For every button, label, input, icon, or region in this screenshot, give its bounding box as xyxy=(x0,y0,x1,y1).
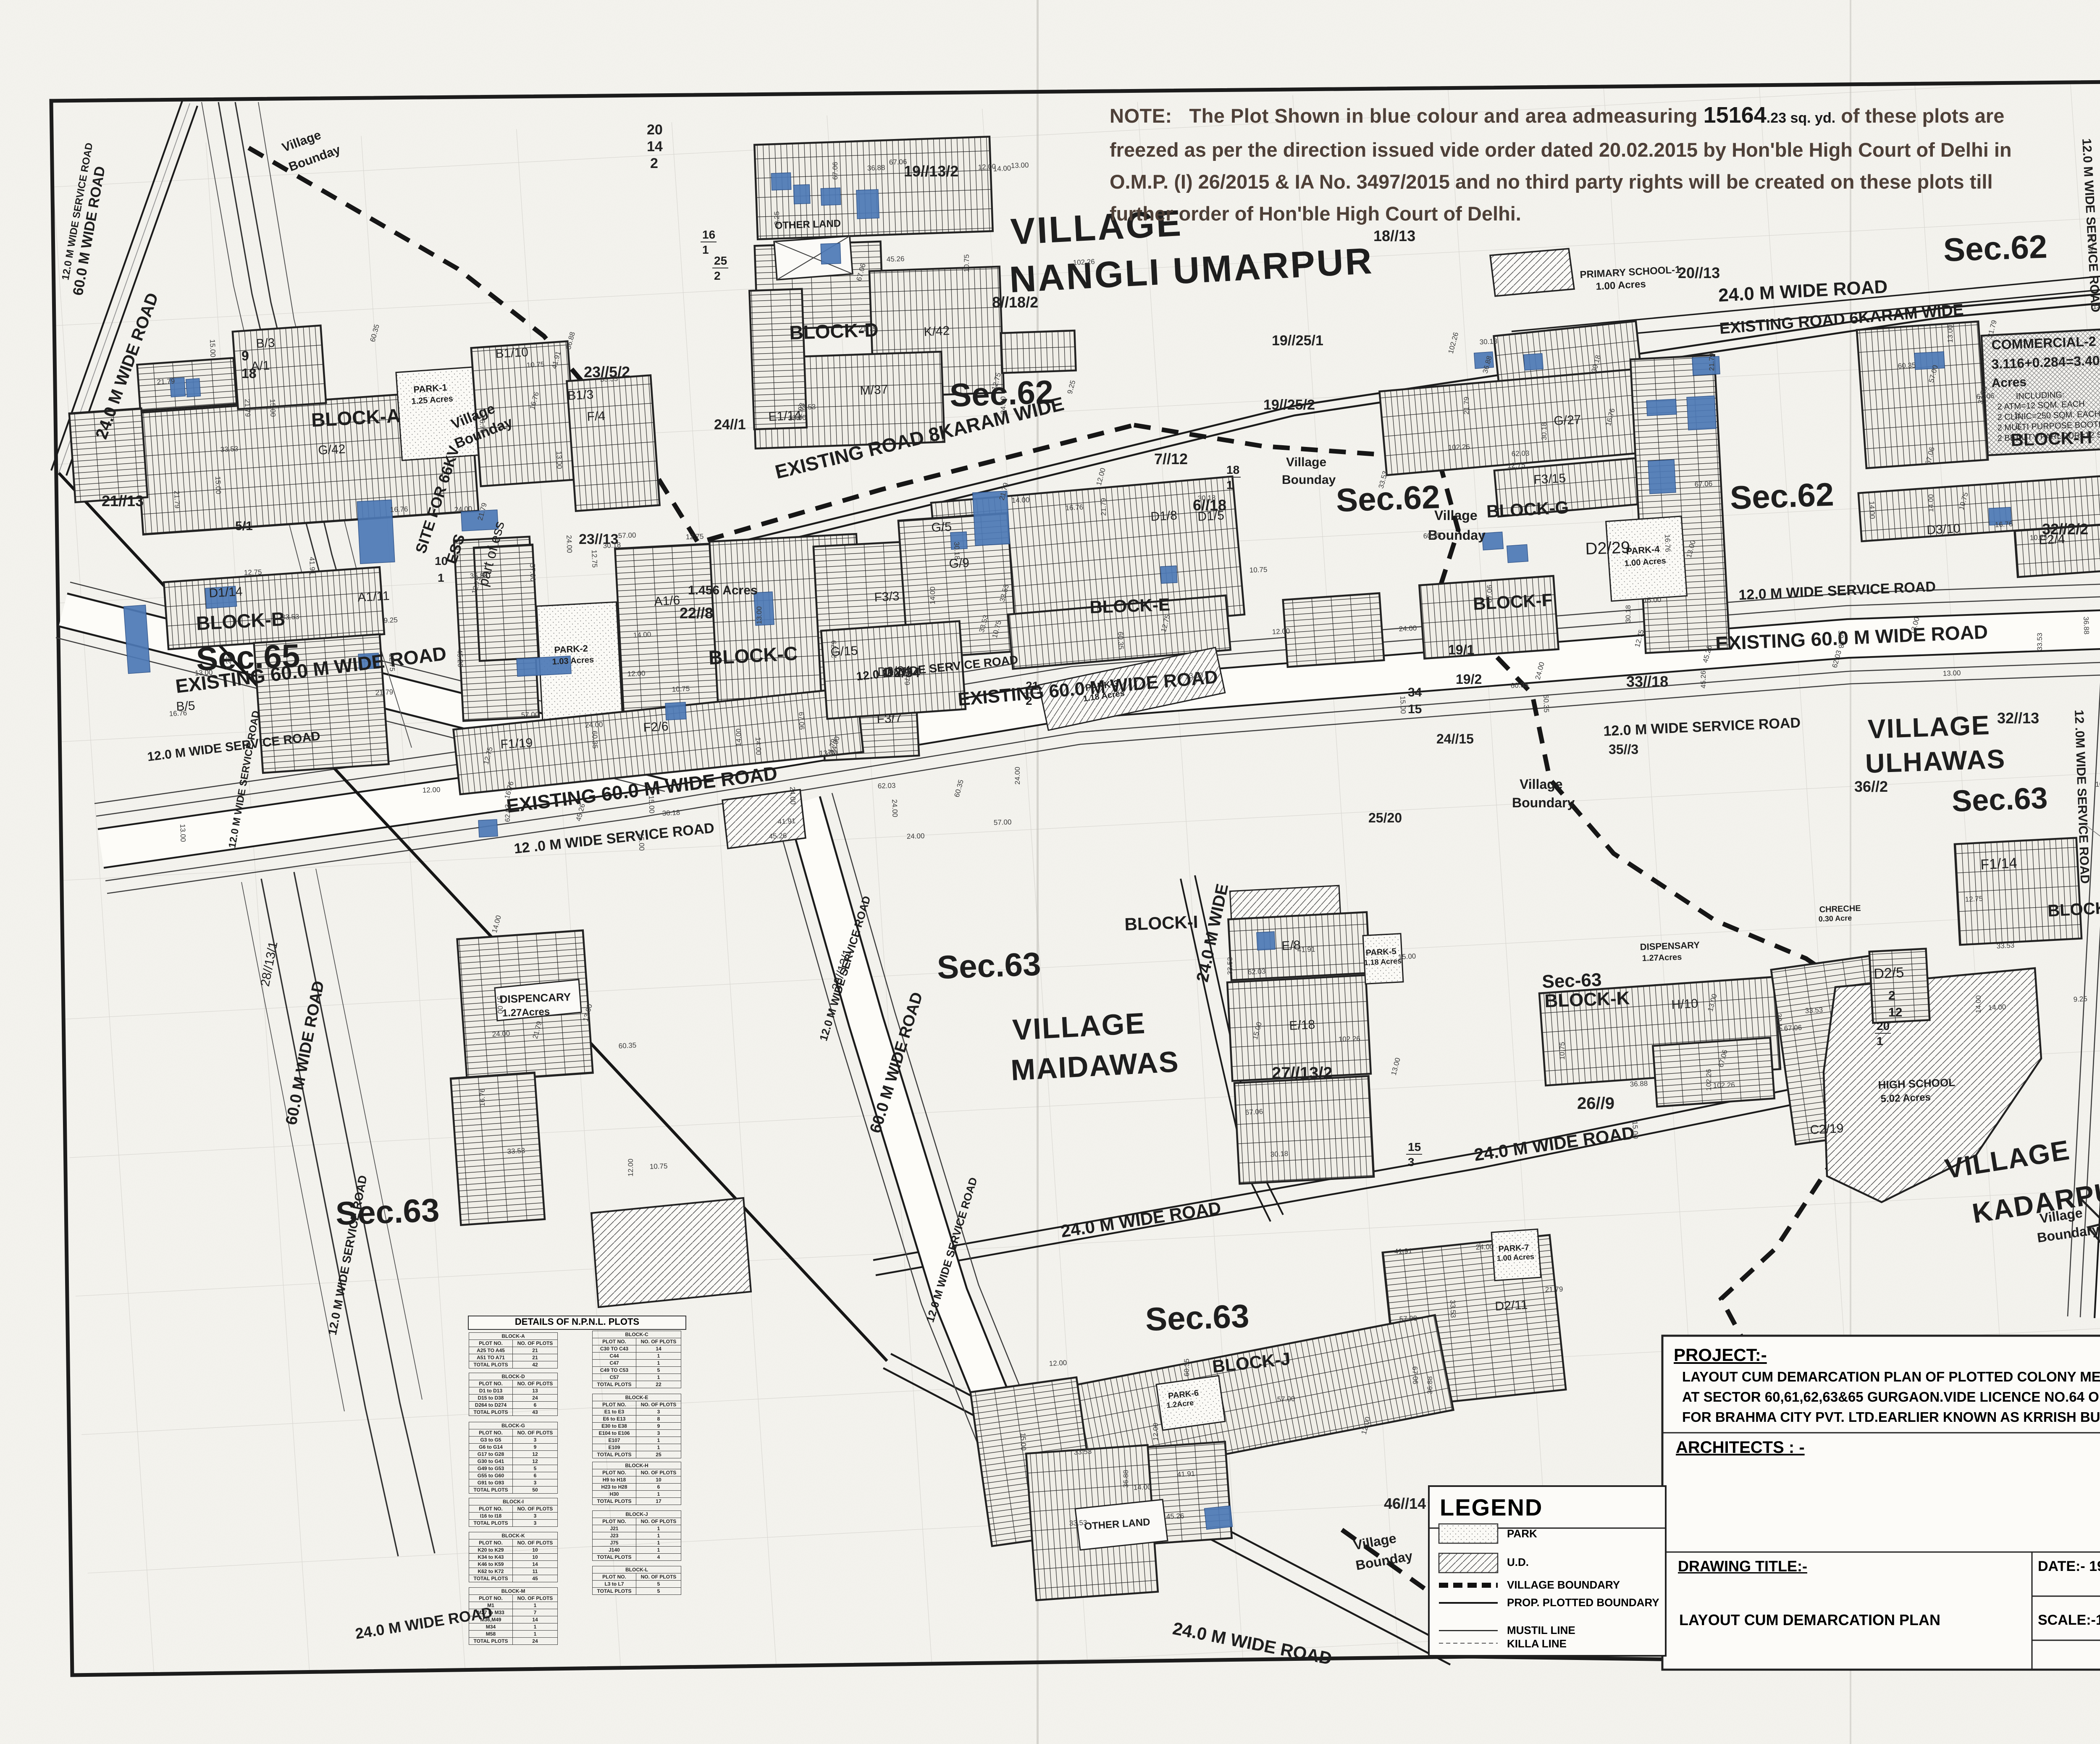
svg-text:24.00: 24.00 xyxy=(492,1030,510,1038)
svg-text:24.00: 24.00 xyxy=(999,396,1007,414)
svg-text:2: 2 xyxy=(714,269,721,282)
svg-text:21.79: 21.79 xyxy=(1462,397,1470,415)
svg-text:14.00: 14.00 xyxy=(735,728,743,746)
svg-text:Village: Village xyxy=(1520,777,1563,792)
svg-text:9.25: 9.25 xyxy=(383,616,398,625)
svg-text:Sec.62: Sec.62 xyxy=(1943,228,2048,268)
svg-text:15.00: 15.00 xyxy=(208,339,217,357)
svg-text:Sec.62: Sec.62 xyxy=(1730,475,1835,516)
svg-text:45.26: 45.26 xyxy=(2087,234,2095,252)
svg-text:14.00: 14.00 xyxy=(1011,496,1029,504)
svg-text:13.00: 13.00 xyxy=(1185,671,1203,680)
svg-text:C2/19: C2/19 xyxy=(1810,1122,1844,1137)
svg-text:15.00: 15.00 xyxy=(1631,1121,1639,1139)
svg-text:VILLAGE: VILLAGE xyxy=(1867,710,1991,744)
svg-text:62.03: 62.03 xyxy=(1511,449,1529,458)
svg-text:57.00: 57.00 xyxy=(993,818,1011,827)
svg-text:33.53: 33.53 xyxy=(1074,1447,1092,1456)
svg-text:12.00: 12.00 xyxy=(1152,1423,1160,1441)
svg-text:D2/29: D2/29 xyxy=(1585,538,1630,558)
svg-text:G/42: G/42 xyxy=(318,442,346,457)
svg-text:12.00: 12.00 xyxy=(627,670,645,678)
svg-text:41.91: 41.91 xyxy=(777,817,795,826)
svg-text:12.00: 12.00 xyxy=(978,163,996,171)
svg-text:21.79: 21.79 xyxy=(903,667,911,685)
svg-text:16.76: 16.76 xyxy=(2095,780,2100,788)
svg-text:60.35: 60.35 xyxy=(1423,531,1441,540)
svg-text:21.79: 21.79 xyxy=(157,377,175,386)
svg-text:33//18: 33//18 xyxy=(1626,673,1668,690)
svg-text:13.00: 13.00 xyxy=(178,824,187,842)
svg-text:15: 15 xyxy=(1408,702,1422,716)
svg-text:INCLUDING:: INCLUDING: xyxy=(2016,390,2064,401)
svg-text:33.53: 33.53 xyxy=(1996,941,2014,950)
svg-text:14.00: 14.00 xyxy=(1133,1483,1151,1492)
svg-text:36.88: 36.88 xyxy=(2082,616,2090,634)
svg-text:PARK-5: PARK-5 xyxy=(1365,947,1396,958)
svg-text:67.06: 67.06 xyxy=(1486,585,1494,603)
svg-text:12.75: 12.75 xyxy=(244,568,262,577)
svg-text:33.53: 33.53 xyxy=(1069,1519,1087,1527)
svg-text:102.26: 102.26 xyxy=(1448,443,1470,452)
svg-text:16.76: 16.76 xyxy=(1995,520,2013,529)
svg-text:12.75: 12.75 xyxy=(1965,895,1983,904)
svg-text:15.00: 15.00 xyxy=(1643,596,1661,604)
svg-text:16.76: 16.76 xyxy=(478,1088,486,1106)
svg-text:D1/14: D1/14 xyxy=(209,585,243,600)
svg-text:19//25/2: 19//25/2 xyxy=(1263,397,1315,413)
svg-text:41.91: 41.91 xyxy=(1177,1470,1195,1479)
svg-text:G/5: G/5 xyxy=(931,520,952,535)
svg-text:30.18: 30.18 xyxy=(662,809,680,817)
svg-text:14.00: 14.00 xyxy=(1974,995,1982,1013)
svg-text:1.27Acres: 1.27Acres xyxy=(1642,953,1682,963)
svg-text:62.03: 62.03 xyxy=(877,782,895,790)
svg-text:12.00: 12.00 xyxy=(1049,1359,1067,1368)
svg-text:57.00: 57.00 xyxy=(1277,1395,1295,1403)
svg-text:30.18: 30.18 xyxy=(1540,422,1548,440)
svg-text:21.79: 21.79 xyxy=(2013,411,2022,429)
svg-text:60.35: 60.35 xyxy=(591,730,599,749)
svg-text:24//1: 24//1 xyxy=(714,417,746,433)
svg-text:14.00: 14.00 xyxy=(1988,1003,2006,1012)
svg-text:F1/19: F1/19 xyxy=(500,736,533,751)
svg-text:24.00: 24.00 xyxy=(585,721,603,729)
svg-text:A1/11: A1/11 xyxy=(357,589,390,604)
svg-text:10.75: 10.75 xyxy=(672,685,690,693)
svg-text:19//25/1: 19//25/1 xyxy=(1272,333,1323,349)
svg-text:41.91: 41.91 xyxy=(1297,946,1315,954)
svg-text:13.00: 13.00 xyxy=(2092,302,2100,310)
svg-text:D3/10: D3/10 xyxy=(1927,522,1961,537)
svg-text:67.06: 67.06 xyxy=(1976,392,1994,401)
svg-text:33.53: 33.53 xyxy=(2036,633,2044,651)
svg-text:14.00: 14.00 xyxy=(1927,494,1935,512)
svg-text:60.35: 60.35 xyxy=(1183,1358,1191,1376)
svg-text:18: 18 xyxy=(1226,463,1239,476)
svg-text:19/2: 19/2 xyxy=(1456,672,1482,687)
svg-text:33.53: 33.53 xyxy=(281,613,299,621)
svg-text:20//13: 20//13 xyxy=(1678,264,1720,281)
svg-text:21.79: 21.79 xyxy=(375,688,393,697)
svg-text:13.00: 13.00 xyxy=(555,451,563,469)
svg-text:9.25: 9.25 xyxy=(2073,995,2087,1003)
svg-text:25/20: 25/20 xyxy=(1368,810,1402,825)
svg-text:VILLAGE: VILLAGE xyxy=(1012,1006,1147,1046)
svg-text:36.88: 36.88 xyxy=(1122,1470,1130,1488)
svg-text:Sec.63: Sec.63 xyxy=(937,945,1042,986)
svg-text:2: 2 xyxy=(1888,989,1895,1003)
svg-text:14.00: 14.00 xyxy=(1868,501,1876,519)
svg-text:A1/6: A1/6 xyxy=(654,594,680,609)
svg-text:67.06: 67.06 xyxy=(1694,480,1712,489)
svg-text:10.75: 10.75 xyxy=(2029,533,2047,542)
svg-text:21.79: 21.79 xyxy=(243,399,252,417)
svg-text:F2/6: F2/6 xyxy=(643,720,669,735)
svg-text:3: 3 xyxy=(1408,1156,1415,1169)
svg-text:0.30 Acre: 0.30 Acre xyxy=(1818,914,1852,923)
svg-text:13.00: 13.00 xyxy=(1942,669,1961,678)
svg-text:8//18/2: 8//18/2 xyxy=(992,294,1038,311)
svg-text:45.26: 45.26 xyxy=(886,255,904,263)
svg-text:19//13/2: 19//13/2 xyxy=(904,163,958,180)
svg-text:67.06: 67.06 xyxy=(1245,1108,1263,1116)
svg-text:2: 2 xyxy=(650,155,658,171)
svg-text:F3/15: F3/15 xyxy=(1533,471,1566,487)
svg-text:B1/10: B1/10 xyxy=(495,345,529,361)
svg-text:12.75: 12.75 xyxy=(590,549,598,567)
svg-text:102.26: 102.26 xyxy=(1713,1081,1735,1090)
svg-text:G/27: G/27 xyxy=(1554,413,1582,428)
svg-text:Village: Village xyxy=(1434,508,1478,523)
svg-text:12.75: 12.75 xyxy=(388,653,396,671)
svg-text:16: 16 xyxy=(702,228,715,241)
svg-text:BLOCK-B: BLOCK-B xyxy=(196,608,286,634)
svg-text:BLOCK-L: BLOCK-L xyxy=(2047,898,2100,920)
svg-text:D2/34: D2/34 xyxy=(884,665,920,680)
svg-text:F3/7: F3/7 xyxy=(877,711,903,726)
svg-text:27//13/2: 27//13/2 xyxy=(1272,1064,1333,1082)
svg-text:45.26: 45.26 xyxy=(456,649,464,667)
svg-text:9: 9 xyxy=(241,348,249,363)
svg-text:13.00: 13.00 xyxy=(1011,161,1029,170)
svg-text:15.00: 15.00 xyxy=(268,399,277,417)
svg-text:60.35: 60.35 xyxy=(1510,681,1528,690)
svg-text:25: 25 xyxy=(714,254,727,267)
svg-text:10.75: 10.75 xyxy=(1249,566,1267,574)
svg-text:21: 21 xyxy=(1026,679,1039,692)
svg-text:24.00: 24.00 xyxy=(1475,1243,1494,1251)
svg-text:BLOCK-F: BLOCK-F xyxy=(1473,590,1553,614)
svg-text:30.18: 30.18 xyxy=(953,541,961,559)
svg-text:30.18: 30.18 xyxy=(1197,494,1215,502)
svg-text:K/42: K/42 xyxy=(924,324,950,339)
svg-text:30.18: 30.18 xyxy=(603,541,621,550)
svg-text:12.00: 12.00 xyxy=(1272,627,1290,636)
svg-text:45.26: 45.26 xyxy=(1166,1512,1184,1521)
svg-text:30.18: 30.18 xyxy=(1479,337,1497,346)
svg-text:14.00: 14.00 xyxy=(754,737,762,755)
svg-text:PARK-2: PARK-2 xyxy=(554,643,588,655)
svg-text:10.75: 10.75 xyxy=(526,360,544,369)
svg-text:30.18: 30.18 xyxy=(1775,1013,1783,1031)
svg-text:Bounday: Bounday xyxy=(1282,473,1336,487)
svg-text:9.25: 9.25 xyxy=(225,656,233,670)
svg-text:14: 14 xyxy=(647,139,663,155)
svg-text:67.06: 67.06 xyxy=(889,158,907,166)
svg-text:33.53: 33.53 xyxy=(600,375,618,383)
svg-text:Acres: Acres xyxy=(1991,375,2027,390)
svg-text:60.35: 60.35 xyxy=(618,1041,636,1050)
svg-text:16.76: 16.76 xyxy=(390,505,408,514)
svg-text:102.26: 102.26 xyxy=(1338,1035,1360,1043)
svg-text:45.26: 45.26 xyxy=(1699,670,1707,688)
svg-text:16.76: 16.76 xyxy=(169,709,187,718)
svg-text:13.00: 13.00 xyxy=(1946,325,1954,343)
svg-text:33.53: 33.53 xyxy=(507,1147,525,1156)
svg-text:24.00: 24.00 xyxy=(1013,767,1021,785)
svg-text:30.18: 30.18 xyxy=(1270,1150,1288,1158)
svg-text:BLOCK-C: BLOCK-C xyxy=(708,642,798,669)
svg-text:24.00: 24.00 xyxy=(565,535,573,553)
svg-text:34: 34 xyxy=(1408,686,1422,699)
svg-text:9.25: 9.25 xyxy=(773,211,781,225)
svg-text:12.75: 12.75 xyxy=(1507,461,1525,470)
svg-text:33.53: 33.53 xyxy=(1226,957,1234,975)
svg-text:10.75: 10.75 xyxy=(963,254,971,272)
svg-text:57.00: 57.00 xyxy=(528,563,537,581)
svg-text:60.35: 60.35 xyxy=(1116,631,1125,649)
svg-text:36.88: 36.88 xyxy=(867,164,885,172)
svg-text:15: 15 xyxy=(1408,1140,1421,1153)
svg-text:BLOCK-I: BLOCK-I xyxy=(1124,912,1199,934)
svg-text:14.00: 14.00 xyxy=(929,586,937,604)
svg-text:16.76: 16.76 xyxy=(1065,503,1083,512)
svg-text:18: 18 xyxy=(241,366,257,381)
svg-text:D2/5: D2/5 xyxy=(1873,964,1904,982)
svg-text:F1/14: F1/14 xyxy=(1980,855,2017,872)
svg-text:32//13: 32//13 xyxy=(1997,709,2039,727)
svg-text:B/3: B/3 xyxy=(256,336,276,351)
svg-text:2: 2 xyxy=(1026,694,1032,707)
svg-text:1: 1 xyxy=(1226,478,1233,491)
svg-text:24.00: 24.00 xyxy=(906,832,924,840)
svg-text:36//2: 36//2 xyxy=(1854,778,1888,795)
svg-text:B1/3: B1/3 xyxy=(567,388,594,403)
svg-text:CHRECHE: CHRECHE xyxy=(1819,904,1861,914)
svg-text:12.00: 12.00 xyxy=(422,786,440,794)
svg-text:41.91: 41.91 xyxy=(1394,1247,1412,1255)
svg-text:30.18: 30.18 xyxy=(1837,630,1845,648)
svg-text:Boundary: Boundary xyxy=(1512,795,1575,810)
svg-text:D1/8: D1/8 xyxy=(1150,509,1178,524)
svg-text:35//3: 35//3 xyxy=(1609,742,1638,757)
svg-text:15.00: 15.00 xyxy=(214,476,222,494)
svg-text:24.00: 24.00 xyxy=(454,505,472,514)
svg-text:30.18: 30.18 xyxy=(1624,605,1632,623)
svg-text:24.00: 24.00 xyxy=(890,799,899,817)
svg-text:Sec.62: Sec.62 xyxy=(1336,478,1441,519)
svg-text:BLOCK-A: BLOCK-A xyxy=(311,404,401,431)
svg-text:21.79: 21.79 xyxy=(1708,353,1716,371)
svg-text:1.27Acres: 1.27Acres xyxy=(502,1006,550,1019)
svg-text:DISPENCARY: DISPENCARY xyxy=(499,990,571,1006)
svg-text:16.76: 16.76 xyxy=(1663,534,1672,552)
svg-text:26//9: 26//9 xyxy=(1577,1094,1614,1113)
svg-text:36.88: 36.88 xyxy=(1630,1079,1648,1088)
svg-text:M/37: M/37 xyxy=(860,383,888,398)
svg-text:33.53: 33.53 xyxy=(220,445,238,454)
svg-text:33.53: 33.53 xyxy=(1449,1300,1457,1318)
svg-text:24.00: 24.00 xyxy=(1399,624,1417,633)
svg-text:21.79: 21.79 xyxy=(173,490,181,508)
svg-text:BLOCK-K: BLOCK-K xyxy=(1544,988,1630,1011)
svg-text:15.00: 15.00 xyxy=(637,833,646,851)
svg-text:57.00: 57.00 xyxy=(1399,1314,1417,1323)
svg-text:Sec.63: Sec.63 xyxy=(1951,781,2048,818)
svg-text:E/18: E/18 xyxy=(1289,1018,1315,1033)
svg-text:BLOCK-E: BLOCK-E xyxy=(1089,594,1171,617)
svg-text:36.88: 36.88 xyxy=(1426,1376,1434,1394)
svg-text:15.00: 15.00 xyxy=(1398,952,1416,961)
svg-text:102.26: 102.26 xyxy=(1073,257,1095,267)
svg-text:1.456 Acres: 1.456 Acres xyxy=(688,583,758,597)
svg-text:57.00: 57.00 xyxy=(521,711,539,719)
svg-text:20: 20 xyxy=(647,122,663,138)
svg-text:1: 1 xyxy=(1877,1035,1883,1048)
svg-text:102.26: 102.26 xyxy=(1705,1069,1713,1091)
svg-text:7//12: 7//12 xyxy=(1154,450,1188,468)
svg-text:12.00: 12.00 xyxy=(627,1158,635,1177)
svg-text:PARK-7: PARK-7 xyxy=(1498,1243,1529,1254)
svg-text:18//13: 18//13 xyxy=(1373,227,1415,244)
svg-text:24.00: 24.00 xyxy=(788,786,797,804)
svg-text:13.00: 13.00 xyxy=(819,749,837,757)
svg-text:45.26: 45.26 xyxy=(769,832,787,840)
svg-text:5/1: 5/1 xyxy=(235,519,253,533)
svg-text:OTHER LAND: OTHER LAND xyxy=(774,218,841,231)
svg-text:1: 1 xyxy=(702,243,709,256)
svg-text:15.00: 15.00 xyxy=(647,795,656,813)
svg-text:12: 12 xyxy=(1888,1006,1902,1019)
svg-text:24//15: 24//15 xyxy=(1436,731,1474,746)
svg-text:57.00: 57.00 xyxy=(618,531,636,540)
svg-text:F3/3: F3/3 xyxy=(874,589,900,604)
svg-text:10.75: 10.75 xyxy=(1558,1042,1566,1060)
svg-text:21.79: 21.79 xyxy=(858,325,877,333)
svg-text:13.00: 13.00 xyxy=(755,606,763,624)
svg-text:57.00: 57.00 xyxy=(496,995,504,1014)
svg-text:19/1: 19/1 xyxy=(1448,642,1474,657)
svg-text:F/4: F/4 xyxy=(587,409,606,424)
svg-text:10.75: 10.75 xyxy=(649,1162,667,1171)
svg-text:15.00: 15.00 xyxy=(1019,1432,1027,1450)
svg-text:46//14: 46//14 xyxy=(1384,1495,1426,1512)
svg-text:20: 20 xyxy=(1877,1019,1890,1032)
svg-text:HIGH SCHOOL: HIGH SCHOOL xyxy=(1878,1076,1956,1091)
svg-text:D2/11: D2/11 xyxy=(1495,1298,1528,1313)
svg-text:21.79: 21.79 xyxy=(1545,1285,1563,1294)
svg-text:33.53: 33.53 xyxy=(1805,1006,1823,1015)
svg-text:Sec-63: Sec-63 xyxy=(1542,969,1602,992)
svg-text:21.79: 21.79 xyxy=(830,640,838,658)
svg-text:32//2/2: 32//2/2 xyxy=(2042,520,2088,538)
svg-text:5.02 Acres: 5.02 Acres xyxy=(1880,1092,1931,1105)
svg-text:62.03: 62.03 xyxy=(504,804,512,822)
svg-text:67.06: 67.06 xyxy=(1411,1366,1419,1384)
svg-text:60.35: 60.35 xyxy=(1898,361,1916,370)
svg-text:15.00: 15.00 xyxy=(1399,696,1407,714)
svg-text:21//13: 21//13 xyxy=(102,492,144,510)
svg-text:22//8: 22//8 xyxy=(680,604,713,622)
svg-text:H/10: H/10 xyxy=(1671,997,1698,1012)
svg-text:62.03: 62.03 xyxy=(1247,967,1265,976)
svg-text:Sec.63: Sec.63 xyxy=(1145,1297,1250,1338)
svg-text:Village: Village xyxy=(1286,455,1326,469)
svg-text:13.00: 13.00 xyxy=(194,669,213,677)
svg-text:41.91: 41.91 xyxy=(308,557,316,575)
svg-text:1: 1 xyxy=(438,571,444,584)
svg-text:ULHAWAS: ULHAWAS xyxy=(1865,743,2006,779)
svg-text:14.00: 14.00 xyxy=(633,630,651,639)
svg-text:67.06: 67.06 xyxy=(797,712,806,730)
svg-text:12.75: 12.75 xyxy=(685,533,703,541)
svg-text:36.88: 36.88 xyxy=(470,572,488,580)
svg-text:60.35: 60.35 xyxy=(1542,694,1550,712)
svg-text:16.76: 16.76 xyxy=(478,415,486,433)
svg-text:21.79: 21.79 xyxy=(1100,498,1108,516)
svg-text:67.06: 67.06 xyxy=(831,162,839,180)
svg-text:67.06: 67.06 xyxy=(1784,1024,1802,1032)
svg-text:DISPENSARY: DISPENSARY xyxy=(1640,940,1700,952)
